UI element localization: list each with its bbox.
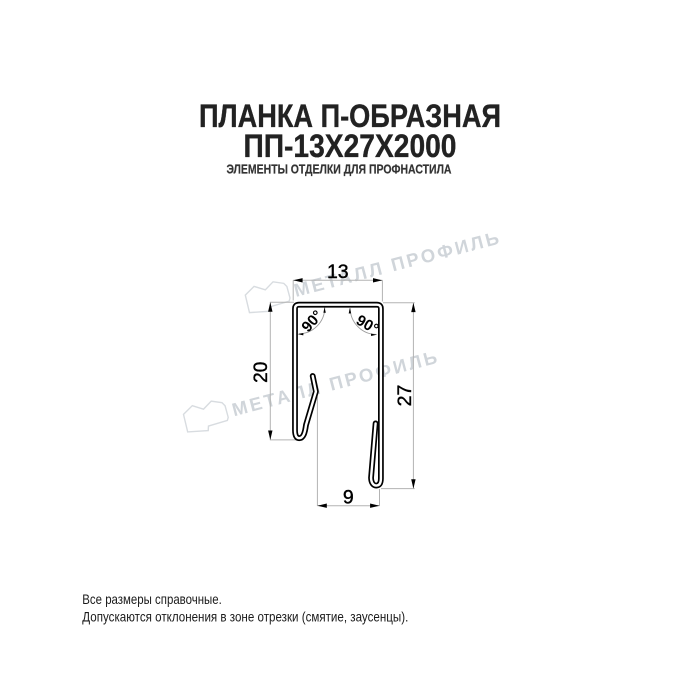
svg-text:Допускаются отклонения в зоне: Допускаются отклонения в зоне отрезки (с… [82,609,408,625]
svg-text:90°: 90° [353,312,381,338]
svg-text:27: 27 [394,385,416,407]
svg-text:Все размеры справочные.: Все размеры справочные. [82,591,222,607]
svg-text:90°: 90° [298,307,326,335]
svg-text:МЕТАЛЛ ПРОФИЛЬ: МЕТАЛЛ ПРОФИЛЬ [292,227,501,301]
svg-text:ПП-13Х27Х2000: ПП-13Х27Х2000 [244,128,457,164]
svg-text:ЭЛЕМЕНТЫ ОТДЕЛКИ ДЛЯ ПРОФНАСТИ: ЭЛЕМЕНТЫ ОТДЕЛКИ ДЛЯ ПРОФНАСТИЛА [227,162,452,176]
svg-text:20: 20 [251,362,272,383]
svg-text:9: 9 [343,486,354,508]
svg-text:13: 13 [327,261,349,283]
